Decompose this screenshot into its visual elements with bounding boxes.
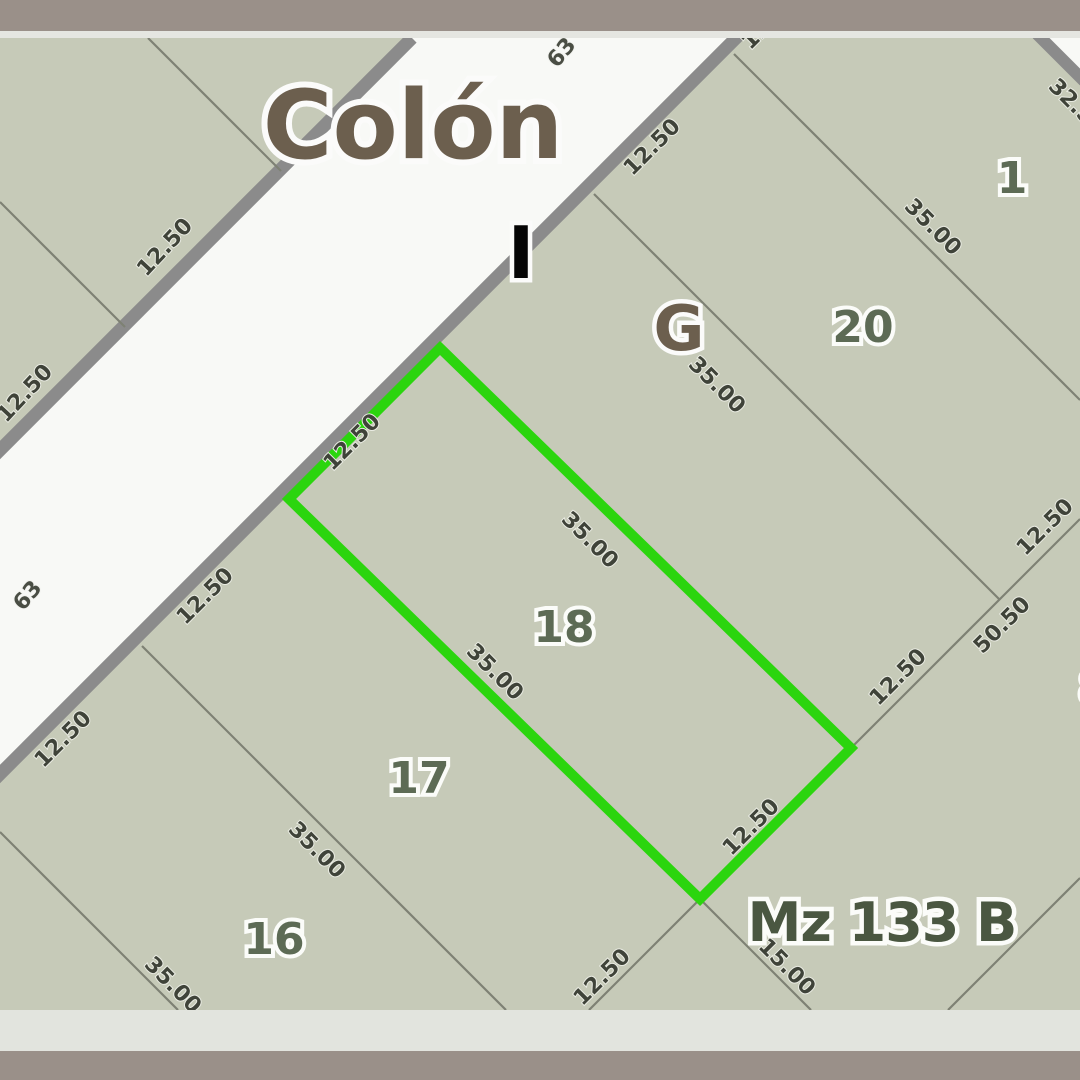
parcel-number-17: 17: [388, 753, 449, 804]
cadastral-map: 12.50 12.50 12.50 12.50 12.50 12.50 12.5…: [0, 0, 1080, 1080]
street-name-colon: Colón: [263, 71, 563, 181]
parcel-number-16: 16: [243, 914, 304, 965]
parcel-number-1: 1: [997, 153, 1028, 204]
screenshot-root: 12.50 12.50 12.50 12.50 12.50 12.50 12.5…: [0, 0, 1080, 1080]
bottom-strip: [0, 1010, 1080, 1051]
bottom-bar: [0, 1051, 1080, 1080]
top-bar: [0, 0, 1080, 31]
parcel-number-20: 20: [832, 302, 893, 353]
parcel-number-18: 18: [533, 602, 594, 653]
block-label-mz-133-b: Mz 133 B: [748, 891, 1017, 954]
section-letter-g: G: [654, 292, 705, 365]
top-strip: [0, 31, 1080, 38]
section-letter-i: I: [508, 211, 535, 295]
